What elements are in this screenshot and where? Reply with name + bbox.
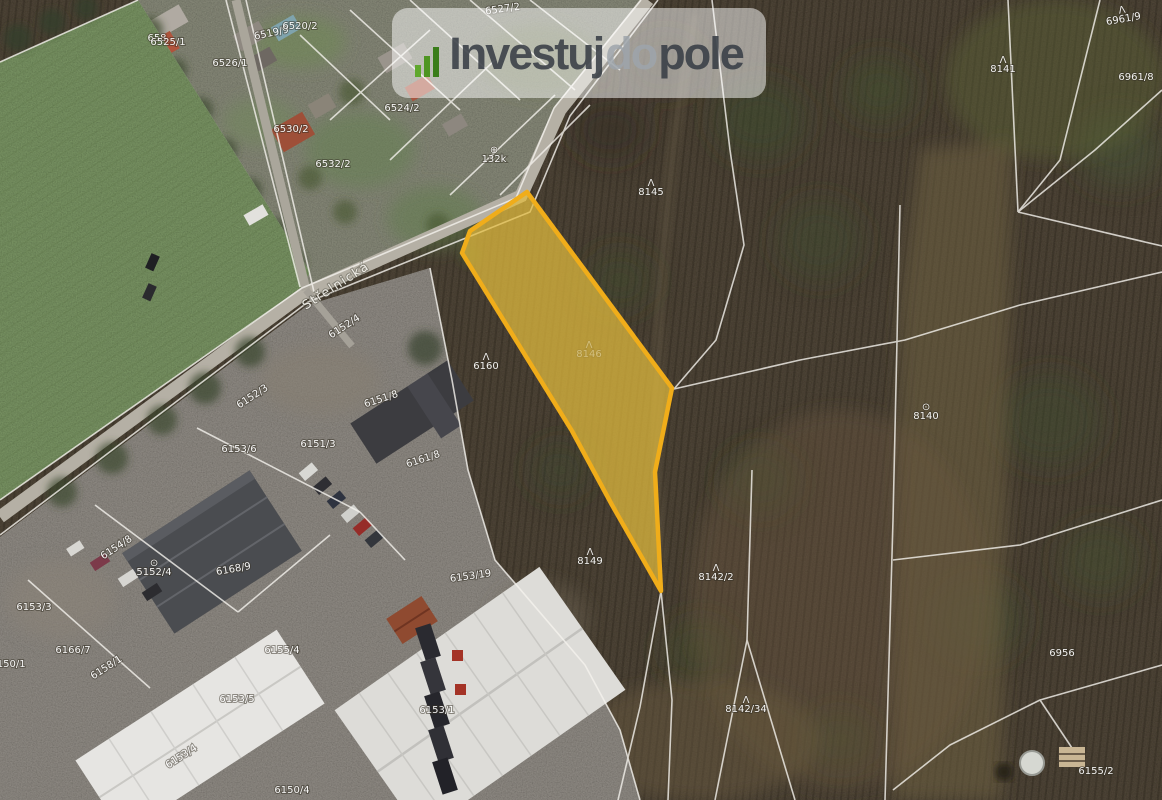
parcel-label: 6520/2: [282, 21, 317, 32]
parcel-label: 6153/6: [221, 444, 256, 455]
watermark-logo: Investuj do pole: [392, 8, 766, 98]
growth-bars-icon: [415, 43, 441, 77]
svg-text:6151/3: 6151/3: [300, 439, 335, 450]
svg-text:6160: 6160: [473, 361, 498, 372]
svg-text:6155/2: 6155/2: [1078, 766, 1113, 777]
logo-text-investuj: Investuj: [449, 31, 603, 76]
svg-text:8140: 8140: [913, 411, 938, 422]
svg-text:6524/2: 6524/2: [384, 103, 419, 114]
parcel-label: 6150/4: [274, 785, 309, 796]
parcel-label: 6525/1: [150, 37, 185, 48]
parcel-label: 6524/2: [384, 103, 419, 114]
svg-text:6520/2: 6520/2: [282, 21, 317, 32]
svg-text:6961/8: 6961/8: [1118, 72, 1153, 83]
svg-text:132k: 132k: [482, 154, 507, 165]
parcel-label: 6166/7: [55, 645, 90, 656]
svg-text:6153/1: 6153/1: [419, 705, 454, 716]
parcel-label: 6153/5: [219, 694, 254, 705]
svg-text:6153/3: 6153/3: [16, 602, 51, 613]
parcel-label: 6530/2: [273, 124, 308, 135]
svg-text:8142/2: 8142/2: [698, 572, 733, 583]
parcel-label: 6956: [1049, 648, 1074, 659]
parcel-label: 6526/1: [212, 58, 247, 69]
parcel-label: 6155/2: [1078, 766, 1113, 777]
svg-text:6530/2: 6530/2: [273, 124, 308, 135]
logo-text-do: do: [605, 31, 656, 76]
parcel-label: 6961/8: [1118, 72, 1153, 83]
svg-text:6153/5: 6153/5: [219, 694, 254, 705]
svg-text:6525/1: 6525/1: [150, 37, 185, 48]
parcel-label: 6150/1: [0, 659, 26, 670]
satellite-map: 6527/26519/96586526/16525/16520/26530/26…: [0, 0, 1162, 800]
svg-text:6526/1: 6526/1: [212, 58, 247, 69]
svg-text:8145: 8145: [638, 187, 663, 198]
svg-text:8142/34: 8142/34: [725, 704, 767, 715]
svg-text:8149: 8149: [577, 556, 602, 567]
parcel-label: 6153/1: [419, 705, 454, 716]
svg-text:6532/2: 6532/2: [315, 159, 350, 170]
parcel-label: 6155/4: [264, 645, 299, 656]
parcel-label: 6151/3: [300, 439, 335, 450]
svg-text:5152/4: 5152/4: [136, 567, 171, 578]
parcel-label: 6153/3: [16, 602, 51, 613]
svg-text:6150/4: 6150/4: [274, 785, 309, 796]
svg-text:6155/4: 6155/4: [264, 645, 299, 656]
svg-text:6166/7: 6166/7: [55, 645, 90, 656]
logo-text-pole: pole: [658, 31, 743, 76]
satellite-map-screenshot: 6527/26519/96586526/16525/16520/26530/26…: [0, 0, 1162, 800]
svg-text:8141: 8141: [990, 64, 1015, 75]
svg-text:6956: 6956: [1049, 648, 1074, 659]
svg-text:6150/1: 6150/1: [0, 659, 26, 670]
svg-text:8146: 8146: [576, 349, 601, 360]
svg-text:6153/6: 6153/6: [221, 444, 256, 455]
parcel-label: 6532/2: [315, 159, 350, 170]
